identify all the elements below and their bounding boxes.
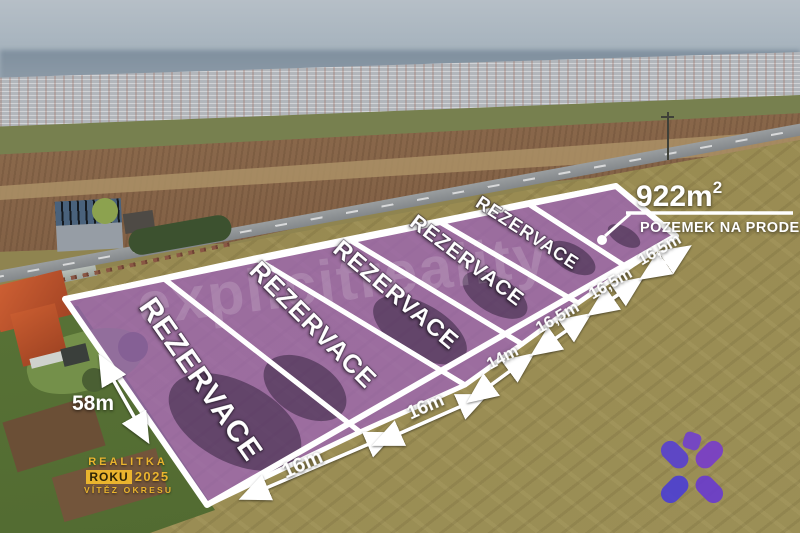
- badge-title: REALITKA: [84, 456, 172, 468]
- tree: [118, 332, 148, 362]
- land-listing-photo: explicitreality REZERVACE REZERVACE REZE…: [0, 0, 800, 533]
- tree: [82, 368, 106, 392]
- badge-year: 2025: [135, 469, 170, 484]
- badge-roku-box: ROKU: [86, 470, 131, 484]
- utility-pole-crossarm: [661, 116, 674, 118]
- badge-subtitle: VÍTĚZ OKRESU: [84, 485, 172, 495]
- utility-pole: [667, 112, 669, 160]
- realitka-roku-badge: REALITKA ROKU 2025 VÍTĚZ OKRESU: [84, 456, 172, 495]
- badge-year-row: ROKU 2025: [84, 469, 172, 484]
- tree: [92, 198, 118, 224]
